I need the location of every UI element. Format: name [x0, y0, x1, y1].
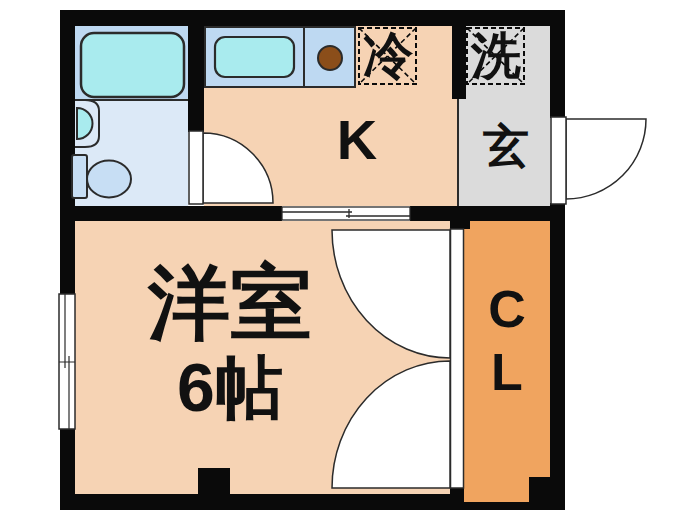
bathroom-tub-area-floor — [75, 26, 188, 100]
closet-label-c: C — [464, 278, 550, 341]
wall — [188, 10, 204, 132]
kitchen-label: K — [317, 108, 397, 172]
kitchen-entrance-divider-line — [457, 99, 459, 206]
sliding-door-icon — [282, 207, 410, 220]
wall — [60, 206, 282, 221]
closet-door-track — [451, 229, 464, 488]
kitchen-counter — [204, 26, 356, 88]
wall — [550, 10, 565, 118]
wall — [450, 488, 464, 510]
wall-pillar — [198, 468, 230, 494]
wall-notch — [529, 477, 550, 502]
western-room-name: 洋室 — [100, 258, 360, 348]
wall — [60, 494, 464, 510]
wall — [60, 10, 75, 295]
washer-label: 洗 — [460, 22, 532, 90]
entrance-door-arc-icon — [551, 117, 646, 204]
wall — [550, 203, 565, 510]
floor-plan: 冷 洗 K 玄 洋室 6帖 C L — [0, 0, 700, 525]
closet-label-l: L — [464, 341, 550, 404]
western-room-size: 6帖 — [100, 348, 360, 426]
refrigerator-label: 冷 — [352, 22, 424, 90]
western-room-label: 洋室 6帖 — [100, 258, 360, 426]
wall — [410, 206, 553, 221]
entrance-label: 玄 — [476, 118, 536, 174]
window-icon — [59, 294, 75, 429]
wall — [450, 221, 470, 229]
bathroom-floor — [75, 100, 188, 206]
counter-divider-line — [303, 26, 305, 88]
closet-label: C L — [464, 278, 550, 404]
bathroom-divider-line — [75, 99, 188, 101]
